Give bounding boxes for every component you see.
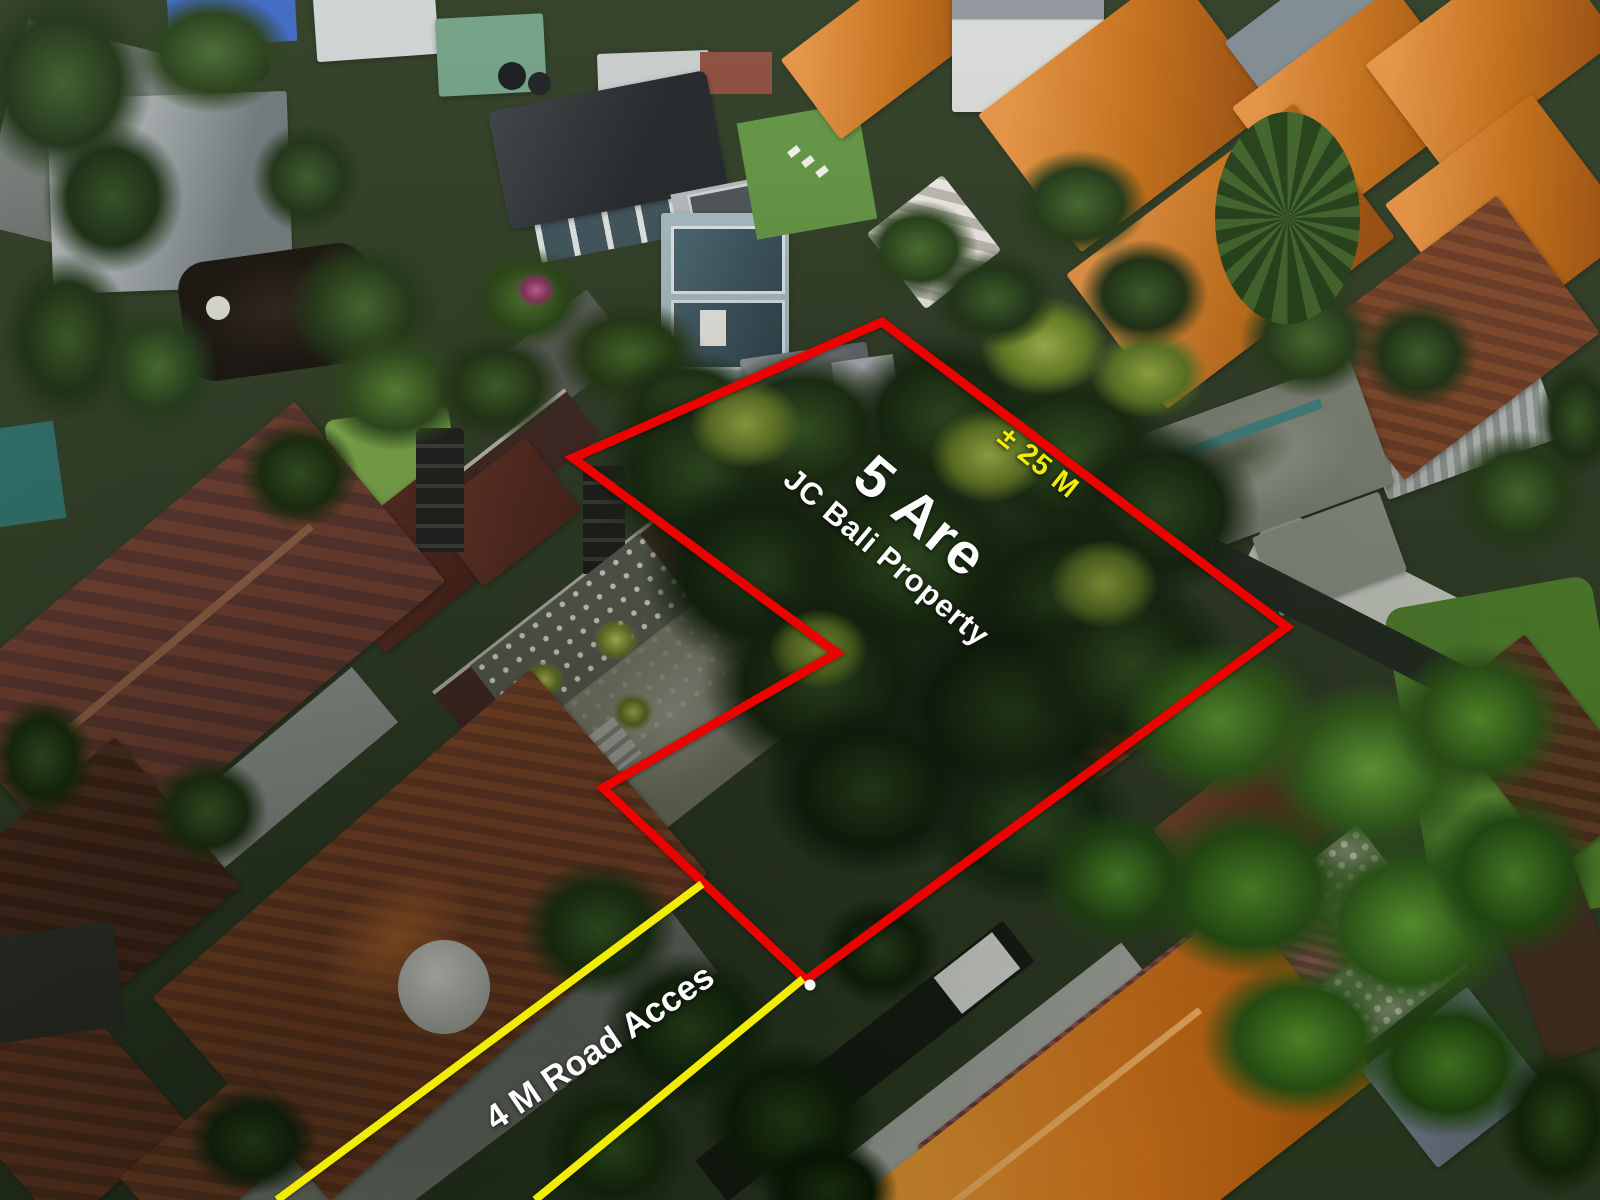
- plot-boundary-outline: [573, 322, 1287, 980]
- boundary-corner-marker: [805, 980, 816, 991]
- aerial-photo-scene: 5 Are JC Bali Property ± 25 M 4 M Road A…: [0, 0, 1600, 1200]
- annotation-overlay: [0, 0, 1600, 1200]
